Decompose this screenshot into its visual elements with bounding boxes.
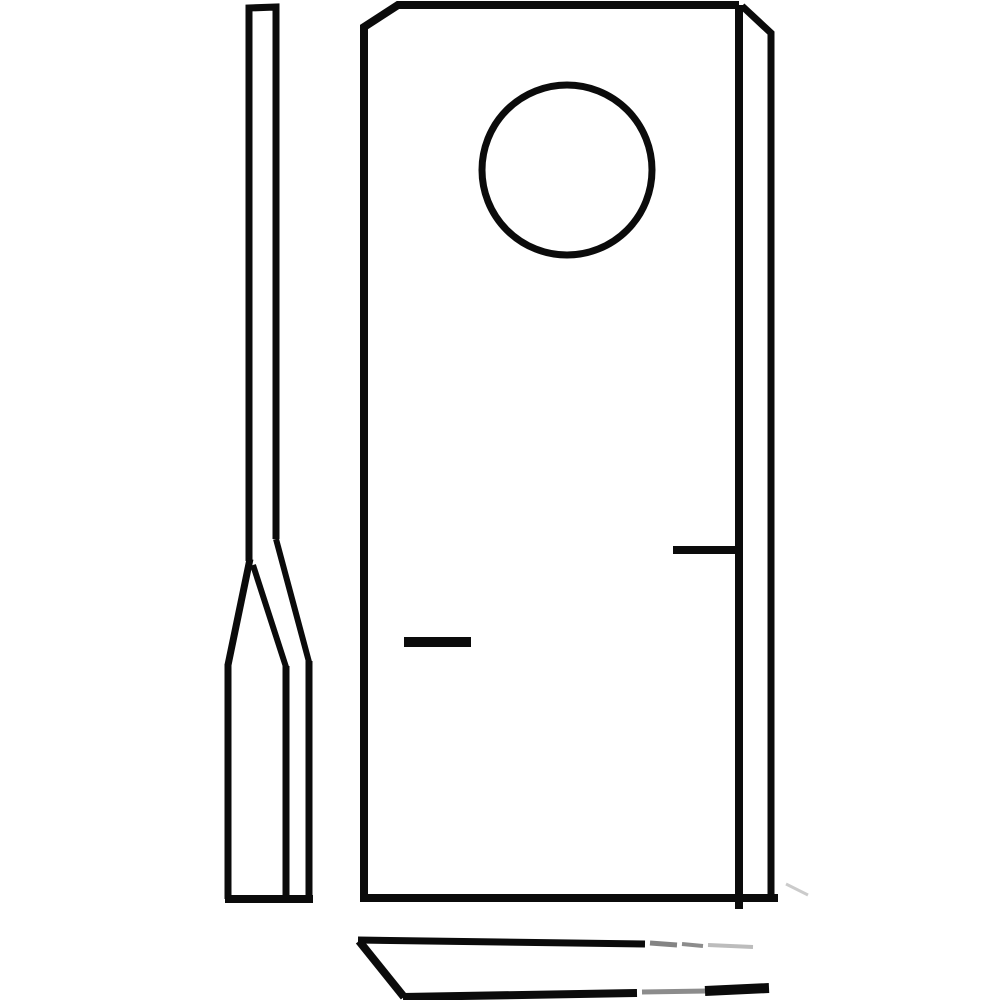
side-view-bevel-left-edge	[228, 559, 250, 665]
bottom-view-top-edge-faded-2	[682, 944, 703, 946]
blade-diagram-svg	[0, 0, 1000, 1000]
bottom-view-bottom-edge	[403, 993, 637, 997]
bottom-view-top-edge-faded-1	[650, 943, 677, 945]
bolt-hole	[482, 85, 652, 255]
side-view-bevel-grind-line	[253, 565, 286, 667]
bottom-view-top-edge-faded-3	[708, 945, 753, 947]
bottom-view-bottom-edge-tip	[705, 988, 769, 991]
bottom-view-bottom-edge-faded	[642, 991, 707, 992]
bottom-view-top-edge	[358, 940, 645, 944]
bottom-view-left-bevel-edge	[359, 941, 404, 997]
mower-blade-technical-drawing	[0, 0, 1000, 1000]
side-view-upper-strip-outline	[249, 7, 276, 561]
front-view-right-lip-edge	[742, 6, 771, 897]
front-view-left-and-top-outline	[364, 5, 739, 899]
watermark-remnant-smudge	[786, 884, 808, 895]
